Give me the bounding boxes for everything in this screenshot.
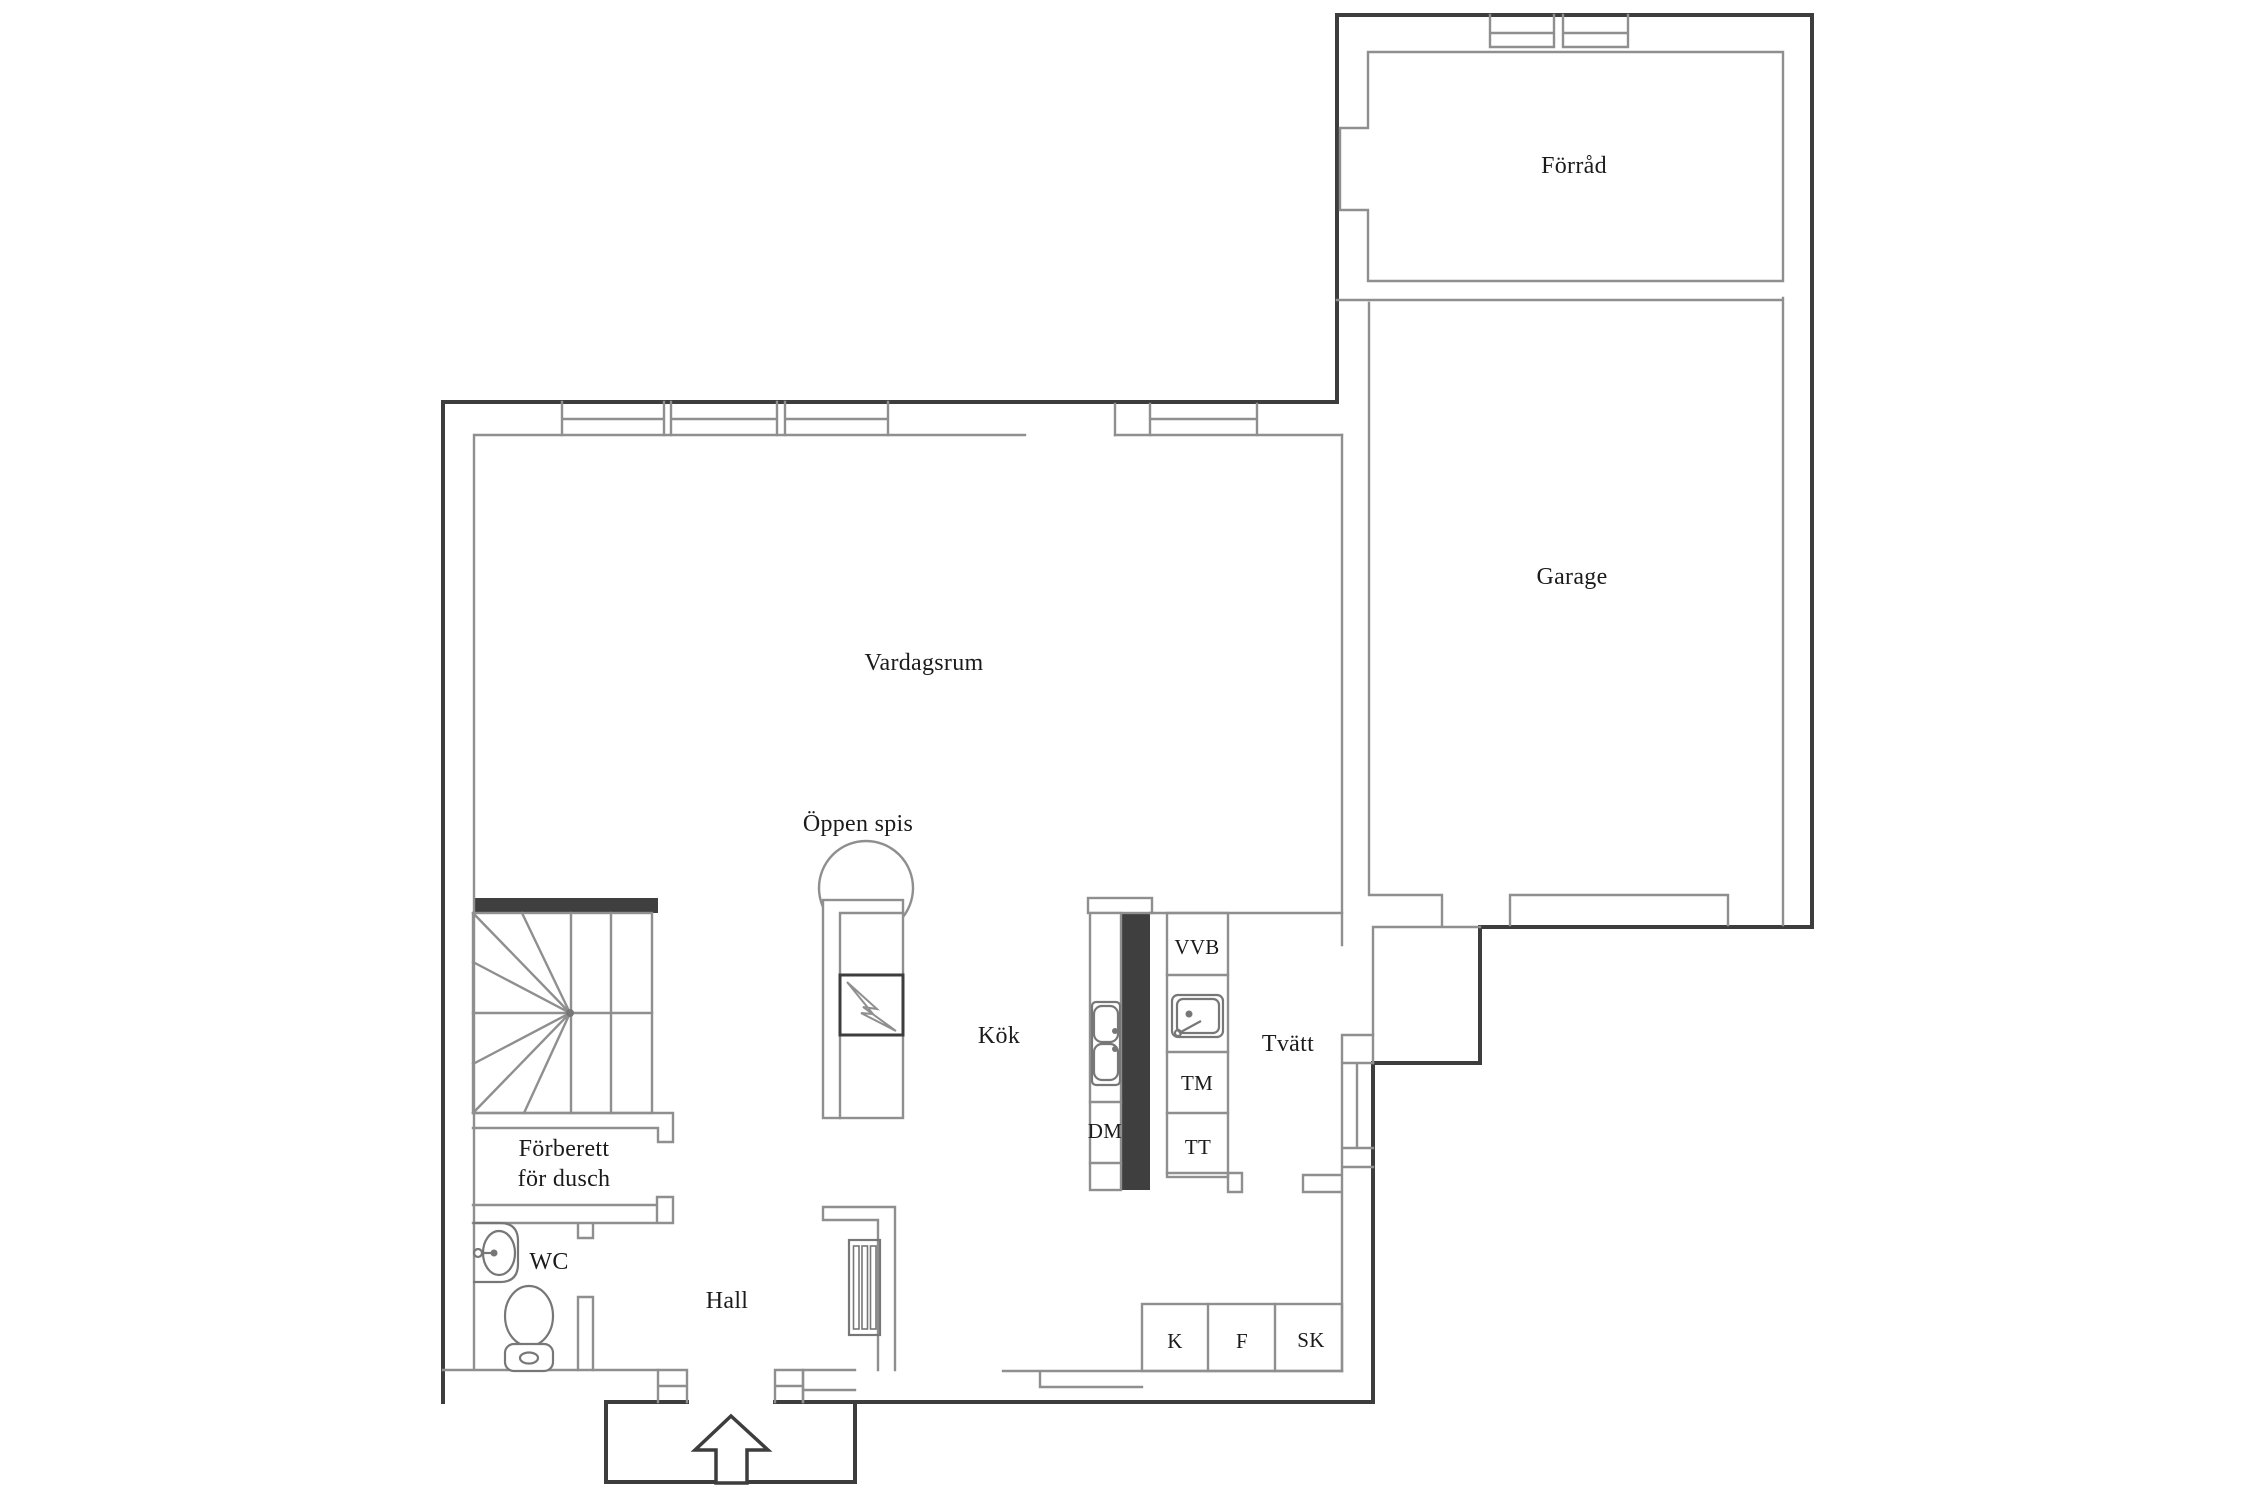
room-label-tvatt: Tvätt [1262,1029,1314,1059]
entry-jambs [658,1370,803,1402]
laundry-sink-icon [1172,995,1223,1037]
appliance-label-tm: TM [1181,1070,1213,1096]
appliance-label-dm: DM [1088,1118,1122,1144]
room-label-kok: Kök [978,1021,1020,1051]
toilet-icon [505,1286,553,1371]
porch [1373,927,1480,1063]
radiator-icon [849,1240,880,1335]
double-sink-icon [1092,1002,1120,1085]
plumbing-wall [1121,913,1150,1190]
wc-sink-icon [473,1223,518,1282]
exterior-walls [443,15,1812,1482]
room-label-wc: WC [529,1247,568,1277]
entrance-arrow-icon [695,1416,768,1483]
window-icon [562,402,1257,435]
appliance-label-vvb: VVB [1174,934,1219,960]
closet-label-k: K [1167,1328,1182,1354]
room-label-forrad: Förråd [1541,151,1607,181]
floor-plan-drawing [0,0,2250,1500]
room-label-oppen-spis: Öppen spis [803,809,913,839]
room-label-hall: Hall [706,1286,749,1316]
room-label-forberett: Förberett för dusch [518,1134,611,1194]
room-label-vardagsrum: Vardagsrum [865,648,984,678]
window-icon [1490,15,1628,47]
closet-label-f: F [1236,1328,1248,1354]
staircase-icon [473,913,652,1113]
closet-label-sk: SK [1297,1327,1324,1353]
room-label-garage: Garage [1536,562,1607,592]
interior-walls-right [1303,435,1373,1371]
stair-top-wall [473,898,658,913]
floor-plan: Förråd Garage Vardagsrum Öppen spis Kök … [0,0,2250,1500]
appliance-label-tt: TT [1185,1134,1211,1160]
interior-walls-top [475,402,1342,435]
fireplace-icon [819,841,913,1118]
